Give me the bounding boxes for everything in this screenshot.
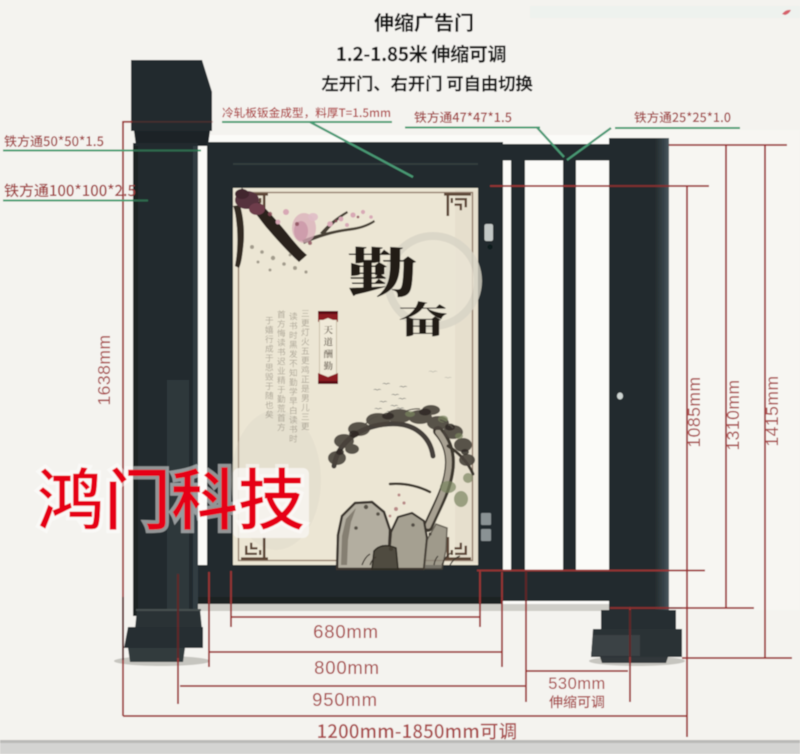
svg-text:1085mm: 1085mm: [684, 376, 704, 447]
svg-text:800mm: 800mm: [314, 657, 380, 678]
svg-text:530mm: 530mm: [548, 675, 606, 693]
svg-text:680mm: 680mm: [313, 621, 379, 642]
svg-text:1310mm: 1310mm: [723, 379, 743, 450]
svg-text:1415mm: 1415mm: [762, 375, 782, 446]
svg-text:1638mm: 1638mm: [94, 334, 114, 405]
svg-text:950mm: 950mm: [312, 689, 378, 710]
